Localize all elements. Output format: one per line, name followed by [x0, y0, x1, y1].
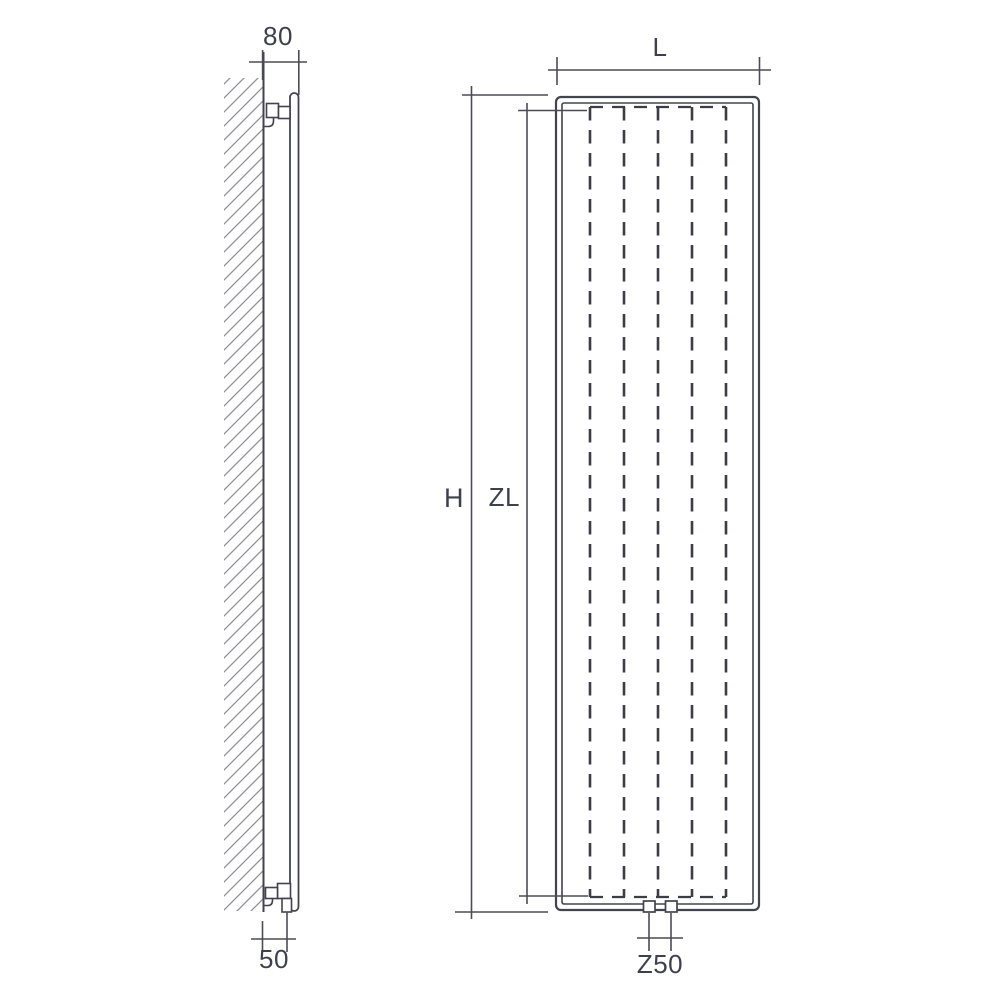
technical-drawing-canvas: 80 50 L — [0, 0, 1000, 1000]
dim-Z50-line — [637, 913, 683, 951]
radiator-technical-drawing: 80 50 L — [0, 0, 1000, 1000]
dim-H-label: H — [444, 483, 464, 513]
top-bracket — [264, 104, 291, 127]
connection-stub-left — [644, 901, 656, 912]
bottom-bracket — [264, 884, 292, 913]
dim-L-label: L — [653, 32, 668, 62]
radiator-panel-side — [290, 93, 299, 911]
wall-hatch — [224, 78, 264, 911]
dim-80-label: 80 — [263, 21, 293, 51]
front-view: L H ZL Z50 — [444, 32, 771, 979]
connection-stub-right — [666, 901, 678, 912]
dim-ZL-label: ZL — [489, 482, 520, 512]
dim-50-label: 50 — [259, 944, 289, 974]
dim-Z50-label: Z50 — [637, 949, 683, 979]
side-view: 80 50 — [224, 21, 307, 974]
